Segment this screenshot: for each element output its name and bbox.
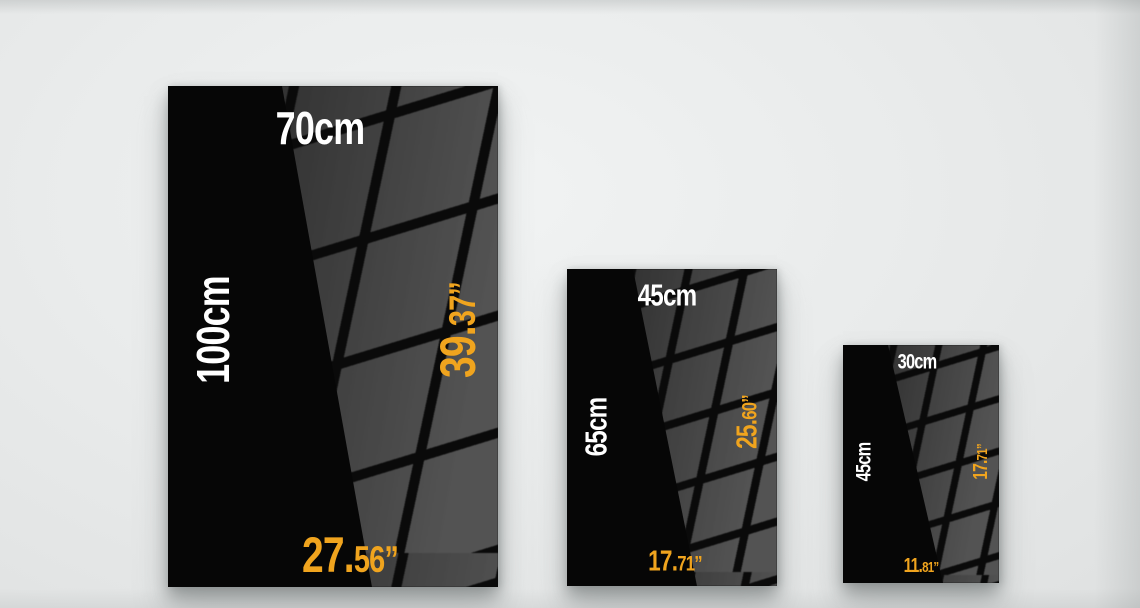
width-cm-label: 45cm	[638, 280, 697, 311]
width-inches-value: 17.	[648, 546, 677, 578]
width-inches-decimal: 81”	[922, 560, 938, 576]
height-cm-label: 100cm	[190, 276, 236, 384]
height-inches-decimal: 71”	[975, 444, 991, 460]
height-inches-value: 39.	[430, 326, 486, 378]
height-cm-label: 65cm	[581, 398, 612, 457]
poster-65x45cm: 45cm 65cm 25.60” 17.71”	[567, 269, 777, 586]
height-inches-value: 17.	[970, 460, 992, 479]
height-inches-decimal: 37”	[442, 282, 483, 326]
width-inches-decimal: 71”	[677, 552, 702, 576]
width-inches-label: 17.71”	[648, 548, 702, 577]
poster-100x70cm: 70cm 100cm 39.37” 27.56”	[168, 86, 498, 587]
width-inches-label: 11.81”	[904, 556, 939, 576]
poster-45x30cm: 30cm 45cm 17.71” 11.81”	[843, 345, 999, 583]
width-cm-label: 30cm	[898, 352, 937, 373]
width-cm-label: 70cm	[276, 105, 365, 151]
width-inches-value: 11.	[904, 555, 922, 577]
width-inches-decimal: 56”	[354, 539, 398, 580]
poster-size-comparison-graphic: 70cm 100cm 39.37” 27.56” 45cm 65cm 25.60…	[0, 0, 1140, 608]
width-inches-value: 27.	[302, 527, 354, 583]
height-inches-value: 25.	[732, 420, 764, 449]
height-cm-label: 45cm	[854, 443, 875, 482]
width-inches-label: 27.56”	[302, 530, 398, 580]
height-inches-label: 17.71”	[971, 444, 991, 480]
height-inches-label: 25.60”	[734, 395, 763, 449]
height-inches-label: 39.37”	[433, 282, 483, 378]
height-inches-decimal: 60”	[738, 395, 762, 420]
